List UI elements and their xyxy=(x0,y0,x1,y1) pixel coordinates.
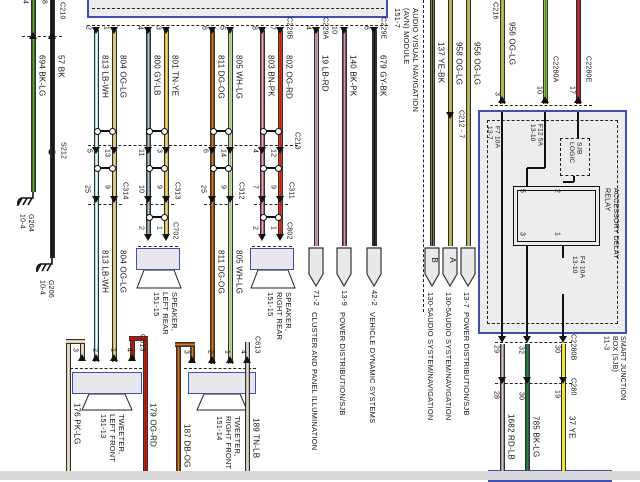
connector-arrow-0 xyxy=(29,32,37,39)
speaker-cone-1 xyxy=(251,270,295,288)
avn-harness-pin-3: 3 xyxy=(153,26,161,30)
relay-pin-5: 5 xyxy=(517,189,525,193)
speaker-left-rear-label: SPEAKER, LEFT REAR 151-15 xyxy=(152,292,179,335)
bend-187 xyxy=(175,342,195,347)
offpage-130-5-a-text: AUDIO SYSTEM/NAVIGATION xyxy=(444,312,453,421)
connector-c314: C314 xyxy=(120,182,128,200)
splice-label-s212: S212 xyxy=(58,142,66,159)
connector-arrow-50 xyxy=(559,377,567,384)
connector-c229b: C229B xyxy=(284,17,292,39)
connector-arrow-12 xyxy=(370,27,378,34)
tweeter-right-front-label: TWEETER, RIGHT FRONT 151-14 xyxy=(215,416,242,469)
avn-harness-pin-4: 4 xyxy=(135,26,143,30)
avn-inner-dash xyxy=(92,8,384,9)
wire-956-og-lg xyxy=(466,0,471,246)
connector-arrow-11 xyxy=(340,27,348,34)
connector-rung-1 xyxy=(148,130,166,132)
connector-arrow-15 xyxy=(144,147,152,154)
avn-harness-pin-6: 6 xyxy=(199,26,207,30)
connector-c229e: C229E xyxy=(378,17,386,39)
avn-harness-pin-1: 1 xyxy=(101,26,109,30)
offpage-audio-a xyxy=(443,248,457,286)
connector-c613: C613 xyxy=(252,336,260,354)
sjb-internal-line-5 xyxy=(562,246,564,258)
connector-arrow-39 xyxy=(226,356,234,363)
section-separator xyxy=(423,0,424,312)
offpage-130-5-b: 130-5 xyxy=(426,292,435,312)
offpage-130-5-b-text: AUDIO SYSTEM/NAVIGATION xyxy=(426,312,435,421)
c702-dash xyxy=(138,246,178,247)
avn-module-label: AUDIO VISUAL NAVIGATION (AVN) MODULE 151… xyxy=(393,8,420,112)
connector-c313: C313 xyxy=(172,182,180,200)
wire-label-57: 57 BK xyxy=(56,55,66,78)
connector-arrow-20 xyxy=(276,147,284,154)
connector-c311: C311 xyxy=(286,182,294,199)
wire-label-956: 956 OG-LG xyxy=(472,42,482,85)
c613-pin-1: 1 xyxy=(222,350,230,354)
sjb-label: SMART JUNCTION BOX (SJB) 11-3 xyxy=(601,336,626,400)
c2280b-pin-32: 32 xyxy=(516,346,524,354)
wire-label-803: 803 BN-PK xyxy=(266,55,276,97)
connector-c702: C702 xyxy=(170,222,178,240)
c513-dash xyxy=(70,368,142,369)
connector-arrow-49 xyxy=(523,377,531,384)
wire-label-801: 801 TN-YE xyxy=(170,55,180,96)
wire-label-805-lower: 805 WH-LG xyxy=(234,250,244,294)
offpage-audio-b xyxy=(425,248,439,286)
offpage-42-2-text: VEHICLE DYNAMIC SYSTEMS xyxy=(368,312,377,423)
offpage-13-7: 13-7 xyxy=(462,292,471,308)
connector-arrow-38 xyxy=(208,356,216,363)
wire-c2280a xyxy=(543,0,548,104)
c210-boundary xyxy=(22,36,62,37)
wiring-diagram-page: { "title": "Audio Visual Navigation (AVN… xyxy=(0,0,640,480)
avn-harness-pin-6b: 6 xyxy=(361,26,369,30)
connector-arrow-23 xyxy=(144,196,152,203)
wire-label-813-lower: 813 LB-WH xyxy=(100,250,110,293)
connector-arrow-41 xyxy=(446,112,454,119)
connector-arrow-1 xyxy=(48,32,56,39)
connector-c802: C802 xyxy=(284,222,292,240)
c213-dash xyxy=(88,145,298,146)
connector-arrow-28 xyxy=(276,196,284,203)
offpage-130-5-a: 130-5 xyxy=(444,292,453,312)
offpage-audio-a-letter: A xyxy=(448,257,457,263)
wire-label-19: 19 LB-RD xyxy=(320,55,330,92)
sjb-internal-line-4 xyxy=(526,246,528,338)
sjb-internal-hline-0 xyxy=(527,167,545,169)
c213-pin-12: 12 xyxy=(268,149,276,157)
connector-arrow-2 xyxy=(92,27,100,34)
c280-pin-19: 19 xyxy=(552,390,560,398)
c213-pin-11: 11 xyxy=(136,149,144,157)
wire-label-813-upper: 813 LB-WH xyxy=(100,55,110,98)
connector-c2280a: C2280A xyxy=(550,56,558,83)
wire-label-679: 679 GY-BK xyxy=(378,55,388,97)
c280-pin-28: 28 xyxy=(491,391,499,399)
relay-pin-1: 1 xyxy=(552,232,560,236)
pin-c210-8: 8 xyxy=(39,0,47,4)
wire-label-1682: 1682 RD-LB xyxy=(506,414,516,460)
connector-arrow-34 xyxy=(92,354,100,361)
connector-rung-4 xyxy=(96,167,114,169)
connector-arrow-29 xyxy=(144,234,152,241)
wire-label-37: 37 YE xyxy=(567,416,577,439)
avn-harness-pin-7: 7 xyxy=(267,26,275,30)
wire-c2280e xyxy=(576,0,581,104)
wire-179-og-rd xyxy=(143,338,148,471)
sjb-pin-3: 3 xyxy=(492,92,500,96)
ground-g206 xyxy=(37,258,52,272)
wire-label-785: 785 BK-LG xyxy=(531,416,541,457)
connector-arrow-3 xyxy=(110,27,118,34)
c312-pin-25: 25 xyxy=(198,185,206,193)
connector-rung-5 xyxy=(148,167,166,169)
c613-pin-3: 3 xyxy=(181,350,189,354)
c312-pin-9: 9 xyxy=(218,185,226,189)
relay-pin-2: 2 xyxy=(552,189,560,193)
connector-arrow-5 xyxy=(162,27,170,34)
connector-arrow-21 xyxy=(92,196,100,203)
c802-pin-2: 2 xyxy=(250,226,258,230)
connector-arrow-16 xyxy=(162,147,170,154)
c311-pin-9: 9 xyxy=(268,185,276,189)
tweeter-left-front-box xyxy=(72,372,142,394)
c314-pin-25: 25 xyxy=(82,185,90,193)
wire-679-gy-bk xyxy=(372,30,377,246)
connector-arrow-7 xyxy=(226,27,234,34)
connector-arrow-10 xyxy=(312,27,320,34)
wire-label-179: 179 OG-RD xyxy=(148,403,158,447)
connector-arrow-25 xyxy=(208,196,216,203)
connector-arrow-45 xyxy=(498,336,506,343)
c613-pin-4: 4 xyxy=(238,350,246,354)
connector-arrow-24 xyxy=(162,196,170,203)
connector-arrow-22 xyxy=(110,196,118,203)
connector-c212-7: C212 - 7 xyxy=(456,110,464,138)
page-bottom-strip xyxy=(0,471,640,480)
connector-c229a: C229A xyxy=(320,17,328,39)
c213-pin-6: 6 xyxy=(200,149,208,153)
ground-label-g206: G206 10-4 xyxy=(37,280,54,298)
wire-137-ye-bk xyxy=(430,0,435,246)
c513-pin-4: 4 xyxy=(124,348,132,352)
speaker-cone-0 xyxy=(137,270,181,288)
connector-arrow-31 xyxy=(258,234,266,241)
avn-harness-pin-5: 5 xyxy=(217,26,225,30)
connector-c2280e: C2280E xyxy=(583,56,591,83)
connector-arrow-47 xyxy=(559,336,567,343)
sjb-pin-17: 17 xyxy=(567,86,575,94)
fuse-f4-label: F4 10A 13-10 xyxy=(570,256,586,278)
connector-arrow-6 xyxy=(208,27,216,34)
offpage-13-7-text: POWER DISTRIBUTION/SJB xyxy=(462,312,471,416)
c313-pin-9: 9 xyxy=(154,185,162,189)
speaker-cone-3 xyxy=(197,394,247,410)
connector-arrow-36 xyxy=(128,354,136,361)
connector-rung-3 xyxy=(262,130,280,132)
connector-arrow-27 xyxy=(258,196,266,203)
avn-module-box xyxy=(87,0,388,18)
c2280b-pin-29: 29 xyxy=(491,345,499,353)
sjb-pin-10: 10 xyxy=(534,86,542,94)
wire-label-140: 140 BK-PK xyxy=(348,55,358,96)
c702-pin-2: 2 xyxy=(136,226,144,230)
wire-140-bk-pk xyxy=(342,30,347,246)
c702-pin-1: 1 xyxy=(154,226,162,230)
connector-rung-6 xyxy=(212,167,230,169)
wire-label-956-sjb: 956 OG-LG xyxy=(507,22,517,65)
ground-g204 xyxy=(18,192,33,206)
wire-694-bk-lg xyxy=(31,0,36,192)
tweeter-left-front-label: TWEETER, LEFT FRONT 151-13 xyxy=(99,414,126,462)
sjb-internal-line-3 xyxy=(526,168,528,186)
c513-pin-1: 1 xyxy=(108,348,116,352)
connector-arrow-43 xyxy=(541,96,549,103)
connector-c312: C312 xyxy=(236,182,244,200)
c213-pin-14: 14 xyxy=(218,149,226,157)
connector-rung-2 xyxy=(212,130,230,132)
offpage-13-9-text: POWER DISTRIBUTION/SJB xyxy=(338,312,347,416)
connector-arrow-44 xyxy=(574,96,582,103)
connector-c2280b: C2280B xyxy=(568,334,576,361)
offpage-power-13-7 xyxy=(461,248,475,286)
connector-rung-0 xyxy=(96,130,114,132)
wire-label-800: 800 GY-LB xyxy=(152,55,162,96)
connector-arrow-19 xyxy=(258,147,266,154)
connector-rung-7 xyxy=(262,167,280,169)
wire-label-694: 694 BK-LG xyxy=(37,55,47,96)
offpage-13-9: 13-9 xyxy=(340,290,349,306)
avn-harness-pin-10: 10 xyxy=(329,26,337,34)
connector-arrow-30 xyxy=(162,234,170,241)
wire-label-189: 189 TN-LB xyxy=(251,418,261,458)
connector-arrow-35 xyxy=(110,354,118,361)
connector-arrow-9 xyxy=(276,27,284,34)
offpage-71-2: 71-2 xyxy=(312,290,321,306)
c280-pin-30: 30 xyxy=(516,392,524,400)
connector-arrow-26 xyxy=(226,196,234,203)
wire-956-og-lg-sjb xyxy=(500,0,505,104)
offpage-71-2-text: CLUSTER AND PANEL ILLUMINATION xyxy=(310,312,319,450)
offpage-vehicle-dynamics xyxy=(367,248,381,286)
wire-label-958: 958 OG-LG xyxy=(454,42,464,85)
avn-harness-pin-8: 8 xyxy=(249,26,257,30)
bend-176 xyxy=(66,339,85,344)
sjb-top-dash xyxy=(490,105,592,106)
wire-958-og-lg xyxy=(448,0,453,246)
pin-c210-4: 4 xyxy=(20,0,28,4)
c802-pin-1: 1 xyxy=(268,226,276,230)
connector-arrow-42 xyxy=(498,96,506,103)
wire-176-pk-lg xyxy=(66,341,71,471)
connector-arrow-32 xyxy=(276,234,284,241)
ground-label-g204: G204 10-4 xyxy=(17,214,34,232)
connector-arrow-18 xyxy=(226,147,234,154)
c213-pin-3: 3 xyxy=(154,149,162,153)
wire-label-804-upper: 804 OG-LG xyxy=(118,55,128,98)
sjb-internal-line-2 xyxy=(577,112,579,138)
connector-c213: C213 xyxy=(292,132,300,150)
connector-arrow-48 xyxy=(498,377,506,384)
c213-pin-5: 5 xyxy=(84,149,92,153)
offpage-42-2: 42-2 xyxy=(370,290,379,306)
c513-pin-2: 2 xyxy=(90,348,98,352)
relay-label: ACCESSORY DELAY RELAY xyxy=(602,188,619,259)
connector-arrow-17 xyxy=(208,147,216,154)
avn-harness-pin-2: 2 xyxy=(83,26,91,30)
wire-label-137: 137 YE-BK xyxy=(436,42,446,83)
offpage-audio-b-letter: B xyxy=(430,257,439,262)
connector-arrow-8 xyxy=(258,27,266,34)
c313-pin-10: 10 xyxy=(136,185,144,193)
c613-pin-2: 2 xyxy=(205,350,213,354)
wire-label-802: 802 OG-RD xyxy=(284,55,294,99)
avn-harness-dash xyxy=(87,25,388,26)
c802-dash xyxy=(252,246,292,247)
wire-label-176: 176 PK-LG xyxy=(72,403,82,444)
wire-19-lb-rd xyxy=(314,30,319,246)
offpage-cluster-illumination xyxy=(309,248,323,286)
avn-harness-pin-4b: 4 xyxy=(303,26,311,30)
connector-c513: C513 xyxy=(137,334,145,352)
wire-label-811-upper: 811 DG-OG xyxy=(216,55,226,99)
c2280b-pin-30: 30 xyxy=(552,345,560,353)
c213-pin-13: 13 xyxy=(102,149,110,157)
wire-label-804-lower: 804 OG-LG xyxy=(118,250,128,293)
wire-37-ye xyxy=(561,344,566,471)
speaker-left-rear-box xyxy=(136,248,180,270)
connector-arrow-33 xyxy=(78,354,86,361)
speaker-cone-2 xyxy=(82,394,132,410)
sjb-internal-line-6 xyxy=(562,294,564,338)
fuse-f12-label: F12 5A 13-10 xyxy=(528,124,544,146)
sjb-logic-label: SJB LOGIC xyxy=(567,142,583,163)
c311-pin-7: 7 xyxy=(250,185,258,189)
sjb-internal-line-0 xyxy=(501,112,503,338)
c513-pin-3: 3 xyxy=(70,348,78,352)
offpage-power-distribution xyxy=(337,248,351,286)
connector-arrow-4 xyxy=(144,27,152,34)
connector-arrow-37 xyxy=(188,356,196,363)
sjb-internal-line-1 xyxy=(544,112,546,168)
sjb-internal-hline-1 xyxy=(563,181,574,183)
wire-1682-rd-lb xyxy=(500,344,505,471)
connector-arrow-46 xyxy=(523,336,531,343)
wire-label-187: 187 DB-OG xyxy=(182,424,192,468)
wire-785-bk-lg xyxy=(525,344,530,471)
connector-c210: C210 xyxy=(57,2,65,20)
wire-label-805-upper: 805 WH-LG xyxy=(234,55,244,99)
c314-pin-9: 9 xyxy=(102,185,110,189)
connector-arrow-13 xyxy=(92,147,100,154)
connector-c216: C216 xyxy=(490,2,498,20)
connector-rung-8 xyxy=(148,216,166,218)
relay-pin-3: 3 xyxy=(517,232,525,236)
c213-pin-4: 4 xyxy=(250,149,258,153)
speaker-right-rear-box xyxy=(250,248,294,270)
connector-arrow-14 xyxy=(110,147,118,154)
connector-c280: C280 xyxy=(568,378,576,396)
wire-label-811-lower: 811 DG-OG xyxy=(216,250,226,294)
wire-187-db-og xyxy=(176,344,181,471)
fuse-f7-label: F7 10A 13-7 xyxy=(485,126,501,148)
speaker-right-rear-label: SPEAKER, RIGHT REAR 151-15 xyxy=(266,292,293,340)
connector-arrow-40 xyxy=(243,356,251,363)
connector-rung-9 xyxy=(262,216,280,218)
